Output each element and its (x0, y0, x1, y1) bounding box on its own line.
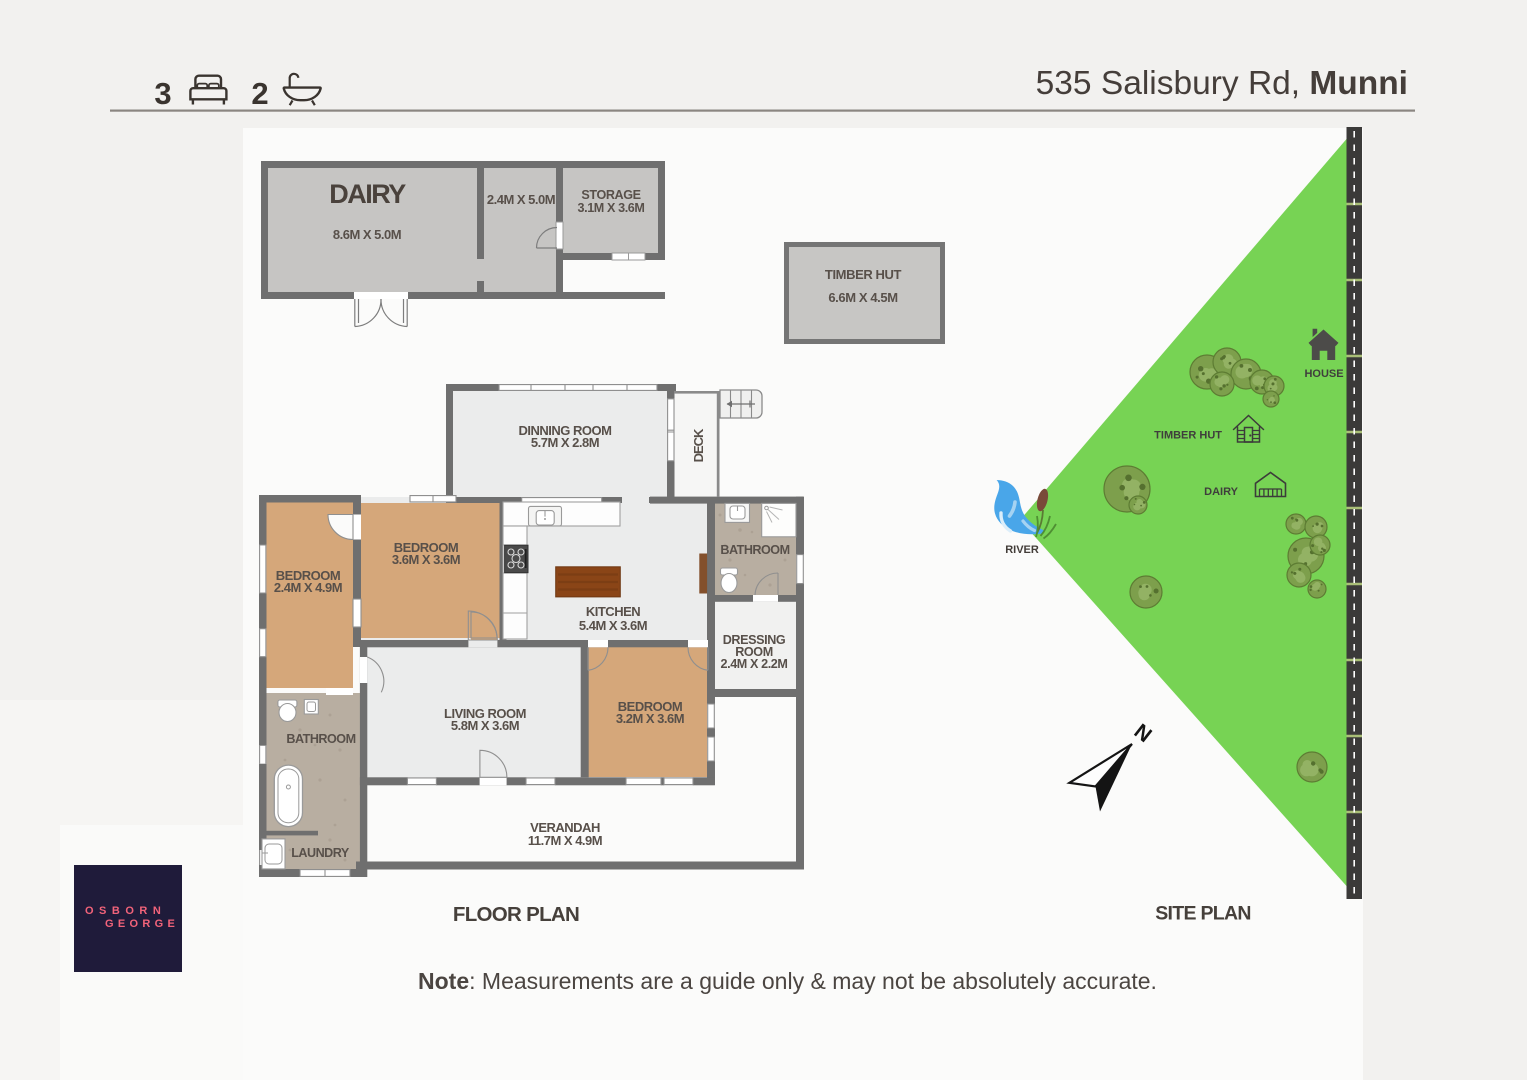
svg-text:BATHROOM: BATHROOM (286, 732, 355, 746)
svg-text:DECK: DECK (691, 428, 706, 462)
svg-text:OSBORN: OSBORN (85, 905, 166, 917)
svg-text:FLOOR PLAN: FLOOR PLAN (453, 903, 579, 926)
svg-text:3.2M X 3.6M: 3.2M X 3.6M (616, 711, 684, 726)
svg-text:STORAGE: STORAGE (581, 188, 640, 202)
svg-text:SITE PLAN: SITE PLAN (1155, 903, 1251, 925)
svg-text:5.4M X 3.6M: 5.4M X 3.6M (579, 618, 647, 633)
svg-text:LAUNDRY: LAUNDRY (291, 846, 350, 860)
svg-text:DAIRY: DAIRY (1204, 486, 1238, 498)
svg-text:GEORGE: GEORGE (105, 918, 179, 930)
svg-text:BATHROOM: BATHROOM (720, 543, 789, 557)
svg-text:2.4M X 2.2M: 2.4M X 2.2M (721, 657, 788, 671)
svg-text:TIMBER HUT: TIMBER HUT (1154, 430, 1222, 442)
svg-text:2.4M X 5.0M: 2.4M X 5.0M (487, 192, 555, 207)
svg-text:KITCHEN: KITCHEN (586, 604, 640, 619)
svg-text:11.7M X 4.9M: 11.7M X 4.9M (528, 833, 602, 848)
svg-text:DAIRY: DAIRY (329, 179, 406, 209)
svg-text:HOUSE: HOUSE (1304, 368, 1343, 380)
svg-text:6.6M X 4.5M: 6.6M X 4.5M (828, 290, 897, 305)
svg-text:RIVER: RIVER (1005, 544, 1039, 556)
svg-text:5.8M X 3.6M: 5.8M X 3.6M (451, 718, 519, 733)
svg-text:8.6M X 5.0M: 8.6M X 5.0M (333, 227, 401, 242)
svg-text:TIMBER HUT: TIMBER HUT (825, 267, 902, 282)
svg-text:3.6M X 3.6M: 3.6M X 3.6M (392, 552, 460, 567)
svg-text:Note: Measurements are a guide: Note: Measurements are a guide only & ma… (418, 968, 1157, 994)
svg-text:2: 2 (251, 76, 268, 111)
svg-text:5.7M X 2.8M: 5.7M X 2.8M (531, 435, 599, 450)
svg-text:3.1M X 3.6M: 3.1M X 3.6M (578, 201, 645, 215)
svg-text:535 Salisbury Rd, Munni: 535 Salisbury Rd, Munni (1036, 65, 1408, 102)
svg-text:2.4M X 4.9M: 2.4M X 4.9M (274, 580, 342, 595)
svg-text:3: 3 (154, 76, 171, 111)
